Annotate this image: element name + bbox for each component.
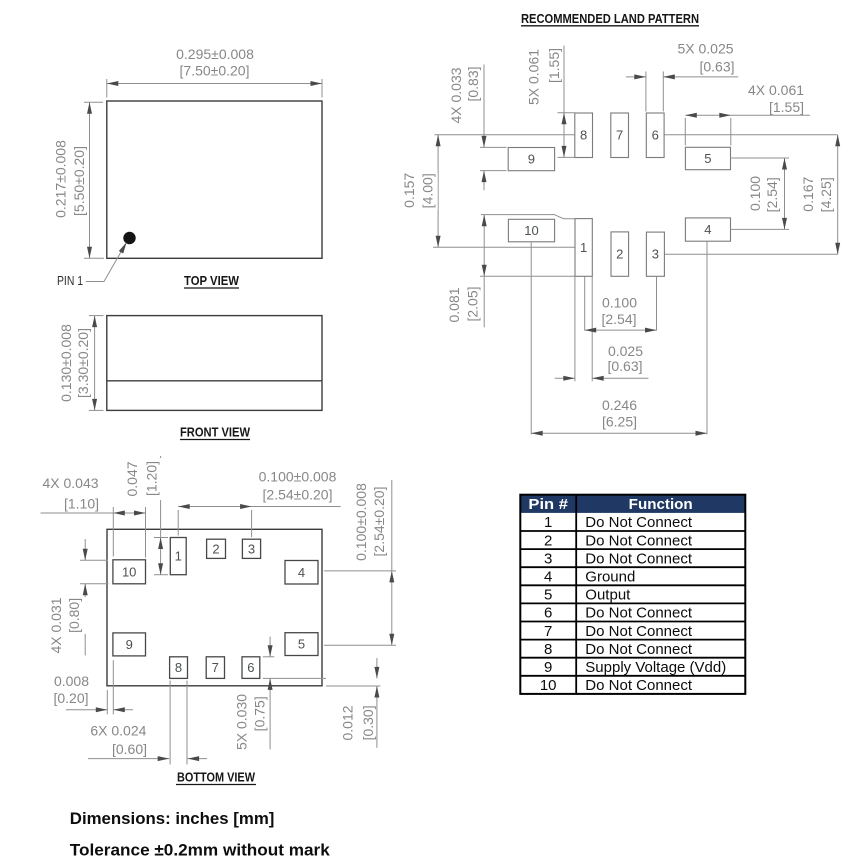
svg-text:3: 3 [652,247,659,262]
svg-text:0.130±0.008: 0.130±0.008 [58,324,74,402]
svg-text:7: 7 [212,660,219,675]
svg-text:5: 5 [298,637,305,652]
svg-text:0.012: 0.012 [340,705,356,740]
svg-text:9: 9 [528,152,535,167]
svg-text:6: 6 [652,128,659,143]
svg-text:PIN 1: PIN 1 [57,274,83,288]
svg-text:BOTTOM VIEW: BOTTOM VIEW [177,770,256,785]
svg-text:5: 5 [544,587,552,604]
svg-text:7: 7 [616,128,623,143]
svg-text:0.217±0.008: 0.217±0.008 [53,140,69,218]
svg-text:0.008: 0.008 [54,673,89,689]
svg-text:[0.60]: [0.60] [112,741,147,757]
svg-text:9: 9 [126,637,133,652]
svg-text:[0.30]: [0.30] [360,705,376,740]
svg-text:0.157: 0.157 [401,173,417,208]
svg-text:FRONT VIEW: FRONT VIEW [180,425,251,440]
svg-text:9: 9 [544,659,552,676]
svg-text:4: 4 [298,565,305,580]
svg-text:Dimensions: inches [mm]: Dimensions: inches [mm] [70,809,275,828]
svg-text:2: 2 [212,541,219,556]
svg-text:0.081: 0.081 [446,287,462,322]
svg-text:2: 2 [616,247,623,262]
svg-text:[0.63]: [0.63] [607,358,642,374]
svg-text:5X 0.061: 5X 0.061 [526,49,542,105]
svg-text:Do Not Connect: Do Not Connect [585,514,693,531]
svg-text:[0.80]: [0.80] [66,598,82,633]
svg-text:6: 6 [544,605,552,622]
svg-text:Pin #: Pin # [528,496,568,513]
svg-text:RECOMMENDED LAND PATTERN: RECOMMENDED LAND PATTERN [521,11,699,26]
svg-text:2: 2 [544,532,552,549]
svg-text:TOP VIEW: TOP VIEW [184,273,240,288]
svg-text:[0.20]: [0.20] [53,690,88,706]
svg-text:Function: Function [629,496,693,513]
svg-text:7: 7 [544,623,552,640]
svg-text:[3.30±0.20]: [3.30±0.20] [75,328,91,398]
svg-text:[0.83]: [0.83] [465,66,481,101]
svg-text:1: 1 [175,549,182,564]
svg-text:[1.10]: [1.10] [64,496,99,512]
svg-text:8: 8 [580,128,587,143]
svg-text:[1.55]: [1.55] [546,48,562,83]
svg-text:0.167: 0.167 [800,176,816,211]
svg-text:[1.20]: [1.20] [144,461,160,496]
svg-text:3: 3 [248,541,255,556]
svg-text:4X 0.061: 4X 0.061 [748,82,804,98]
svg-text:[2.54]: [2.54] [764,177,780,212]
svg-text:Do Not Connect: Do Not Connect [585,532,693,549]
svg-text:0.100±0.008: 0.100±0.008 [353,483,369,561]
svg-text:0.025: 0.025 [608,343,643,359]
svg-text:4: 4 [704,222,711,237]
svg-text:0.100: 0.100 [602,295,637,311]
svg-text:0.295±0.008: 0.295±0.008 [176,46,254,62]
svg-text:4X 0.033: 4X 0.033 [448,67,464,123]
svg-text:[5.50±0.20]: [5.50±0.20] [71,146,87,216]
svg-text:Ground: Ground [585,569,635,586]
svg-text:[2.54±0.20]: [2.54±0.20] [371,487,387,557]
svg-text:Do Not Connect: Do Not Connect [585,550,693,567]
svg-text:Supply Voltage (Vdd): Supply Voltage (Vdd) [585,659,726,676]
svg-text:3: 3 [544,550,552,567]
svg-text:Do Not Connect: Do Not Connect [585,605,693,622]
svg-text:8: 8 [544,641,552,658]
svg-text:1: 1 [580,240,587,255]
svg-text:10: 10 [524,223,538,238]
svg-text:5X 0.025: 5X 0.025 [677,41,733,57]
svg-text:5X 0.030: 5X 0.030 [234,694,250,750]
svg-text:[7.50±0.20]: [7.50±0.20] [180,63,250,79]
svg-text:5: 5 [704,151,711,166]
svg-text:[6.25]: [6.25] [602,414,637,430]
svg-text:[4.00]: [4.00] [419,173,435,208]
svg-text:6: 6 [247,660,254,675]
svg-text:0.100±0.008: 0.100±0.008 [259,469,337,485]
svg-text:0.246: 0.246 [602,397,637,413]
svg-text:[0.63]: [0.63] [699,59,734,75]
svg-text:Do Not Connect: Do Not Connect [585,641,693,658]
svg-text:10: 10 [540,677,557,694]
svg-text:Output: Output [585,587,631,604]
svg-text:6X 0.024: 6X 0.024 [90,723,146,739]
svg-text:[2.54]: [2.54] [601,311,636,327]
svg-text:[0.75]: [0.75] [252,696,268,731]
svg-text:0.047: 0.047 [124,461,140,496]
svg-text:4: 4 [544,569,552,586]
svg-text:Do Not Connect: Do Not Connect [585,677,693,694]
svg-text:[1.55]: [1.55] [769,99,804,115]
svg-text:Do Not Connect: Do Not Connect [585,623,693,640]
svg-text:8: 8 [175,660,182,675]
svg-text:[2.05]: [2.05] [465,286,481,321]
svg-text:4X 0.043: 4X 0.043 [42,475,98,491]
svg-text:Tolerance ±0.2mm without mark: Tolerance ±0.2mm without mark [70,841,331,860]
svg-text:4X 0.031: 4X 0.031 [48,597,64,653]
svg-text:[4.25]: [4.25] [818,177,834,212]
svg-text:0.100: 0.100 [747,176,763,211]
svg-text:10: 10 [122,564,136,579]
svg-text:[2.54±0.20]: [2.54±0.20] [263,487,333,503]
svg-text:1: 1 [544,514,552,531]
